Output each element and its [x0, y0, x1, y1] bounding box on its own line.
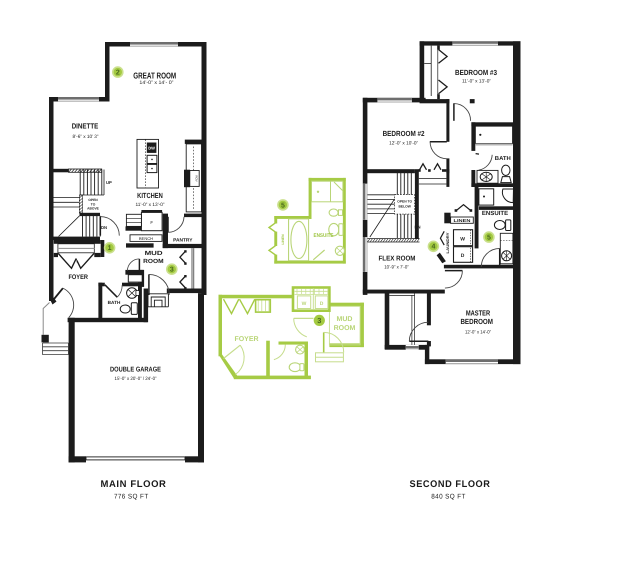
- svg-text:8’-6” x 10’ 3”: 8’-6” x 10’ 3”: [73, 134, 99, 140]
- svg-text:BEDROOM #3: BEDROOM #3: [455, 68, 497, 77]
- svg-text:776 SQ FT: 776 SQ FT: [114, 493, 149, 500]
- svg-text:MUD: MUD: [145, 250, 164, 257]
- svg-text:UP: UP: [106, 180, 112, 185]
- svg-text:ENSUITE: ENSUITE: [482, 210, 508, 217]
- svg-text:W: W: [460, 237, 465, 243]
- svg-text:ROOM: ROOM: [334, 325, 356, 332]
- svg-text:MUD: MUD: [337, 316, 353, 323]
- svg-text:MAIN FLOOR: MAIN FLOOR: [101, 479, 167, 490]
- svg-text:D: D: [461, 253, 465, 259]
- svg-text:ABOVE: ABOVE: [87, 207, 100, 211]
- svg-text:BELOW: BELOW: [399, 204, 412, 208]
- svg-text:PANTRY: PANTRY: [173, 238, 193, 244]
- svg-text:SECOND FLOOR: SECOND FLOOR: [410, 479, 491, 490]
- svg-text:11’-0” x 13’-0”: 11’-0” x 13’-0”: [136, 202, 165, 208]
- svg-text:5: 5: [281, 202, 285, 209]
- svg-text:ROV: ROV: [195, 175, 199, 181]
- svg-text:BATH: BATH: [495, 156, 511, 162]
- svg-text:BEDROOM #2: BEDROOM #2: [383, 129, 425, 138]
- svg-text:DOUBLE GARAGE: DOUBLE GARAGE: [110, 367, 161, 374]
- svg-text:BATH: BATH: [108, 300, 121, 305]
- svg-text:DW: DW: [148, 145, 155, 150]
- svg-text:FLEX ROOM: FLEX ROOM: [379, 255, 416, 262]
- svg-text:12’-0” x 14’-0”: 12’-0” x 14’-0”: [465, 330, 491, 336]
- svg-text:BENCH: BENCH: [139, 236, 153, 241]
- svg-text:DN: DN: [415, 225, 421, 230]
- svg-text:F: F: [150, 220, 153, 225]
- svg-text:LINEN: LINEN: [454, 218, 471, 223]
- svg-text:840 SQ FT: 840 SQ FT: [431, 493, 466, 500]
- svg-text:11’-0” x 13’-0”: 11’-0” x 13’-0”: [462, 78, 491, 84]
- svg-text:KITCHEN: KITCHEN: [137, 191, 163, 200]
- svg-text:ROOM: ROOM: [143, 258, 164, 265]
- svg-text:FOYER: FOYER: [68, 274, 88, 281]
- svg-text:3: 3: [317, 316, 321, 325]
- svg-text:2: 2: [116, 70, 120, 77]
- svg-text:D: D: [320, 301, 324, 307]
- svg-text:15’-0” x 20’-0” / 24’-0”: 15’-0” x 20’-0” / 24’-0”: [115, 376, 157, 382]
- svg-text:12’-0” x 10’-0”: 12’-0” x 10’-0”: [389, 141, 418, 147]
- svg-text:14’-0” x 14’- 0”: 14’-0” x 14’- 0”: [139, 80, 173, 86]
- svg-text:3: 3: [170, 267, 174, 274]
- svg-text:LAUNDRY: LAUNDRY: [446, 232, 450, 254]
- svg-text:DINETTE: DINETTE: [72, 122, 99, 131]
- svg-text:FOYER: FOYER: [234, 336, 258, 343]
- svg-text:ENSUITE: ENSUITE: [314, 233, 334, 239]
- svg-text:5: 5: [487, 235, 491, 242]
- svg-text:LINEN: LINEN: [281, 234, 285, 245]
- svg-text:DN: DN: [101, 225, 107, 230]
- svg-text:OPEN TO: OPEN TO: [397, 200, 412, 204]
- svg-text:1: 1: [108, 245, 112, 252]
- svg-text:10’-9” x 7’-0”: 10’-9” x 7’-0”: [384, 264, 409, 270]
- svg-text:W: W: [302, 301, 307, 307]
- svg-text:MASTER: MASTER: [466, 308, 491, 317]
- svg-text:4: 4: [431, 244, 435, 251]
- svg-text:BEDROOM: BEDROOM: [460, 317, 493, 326]
